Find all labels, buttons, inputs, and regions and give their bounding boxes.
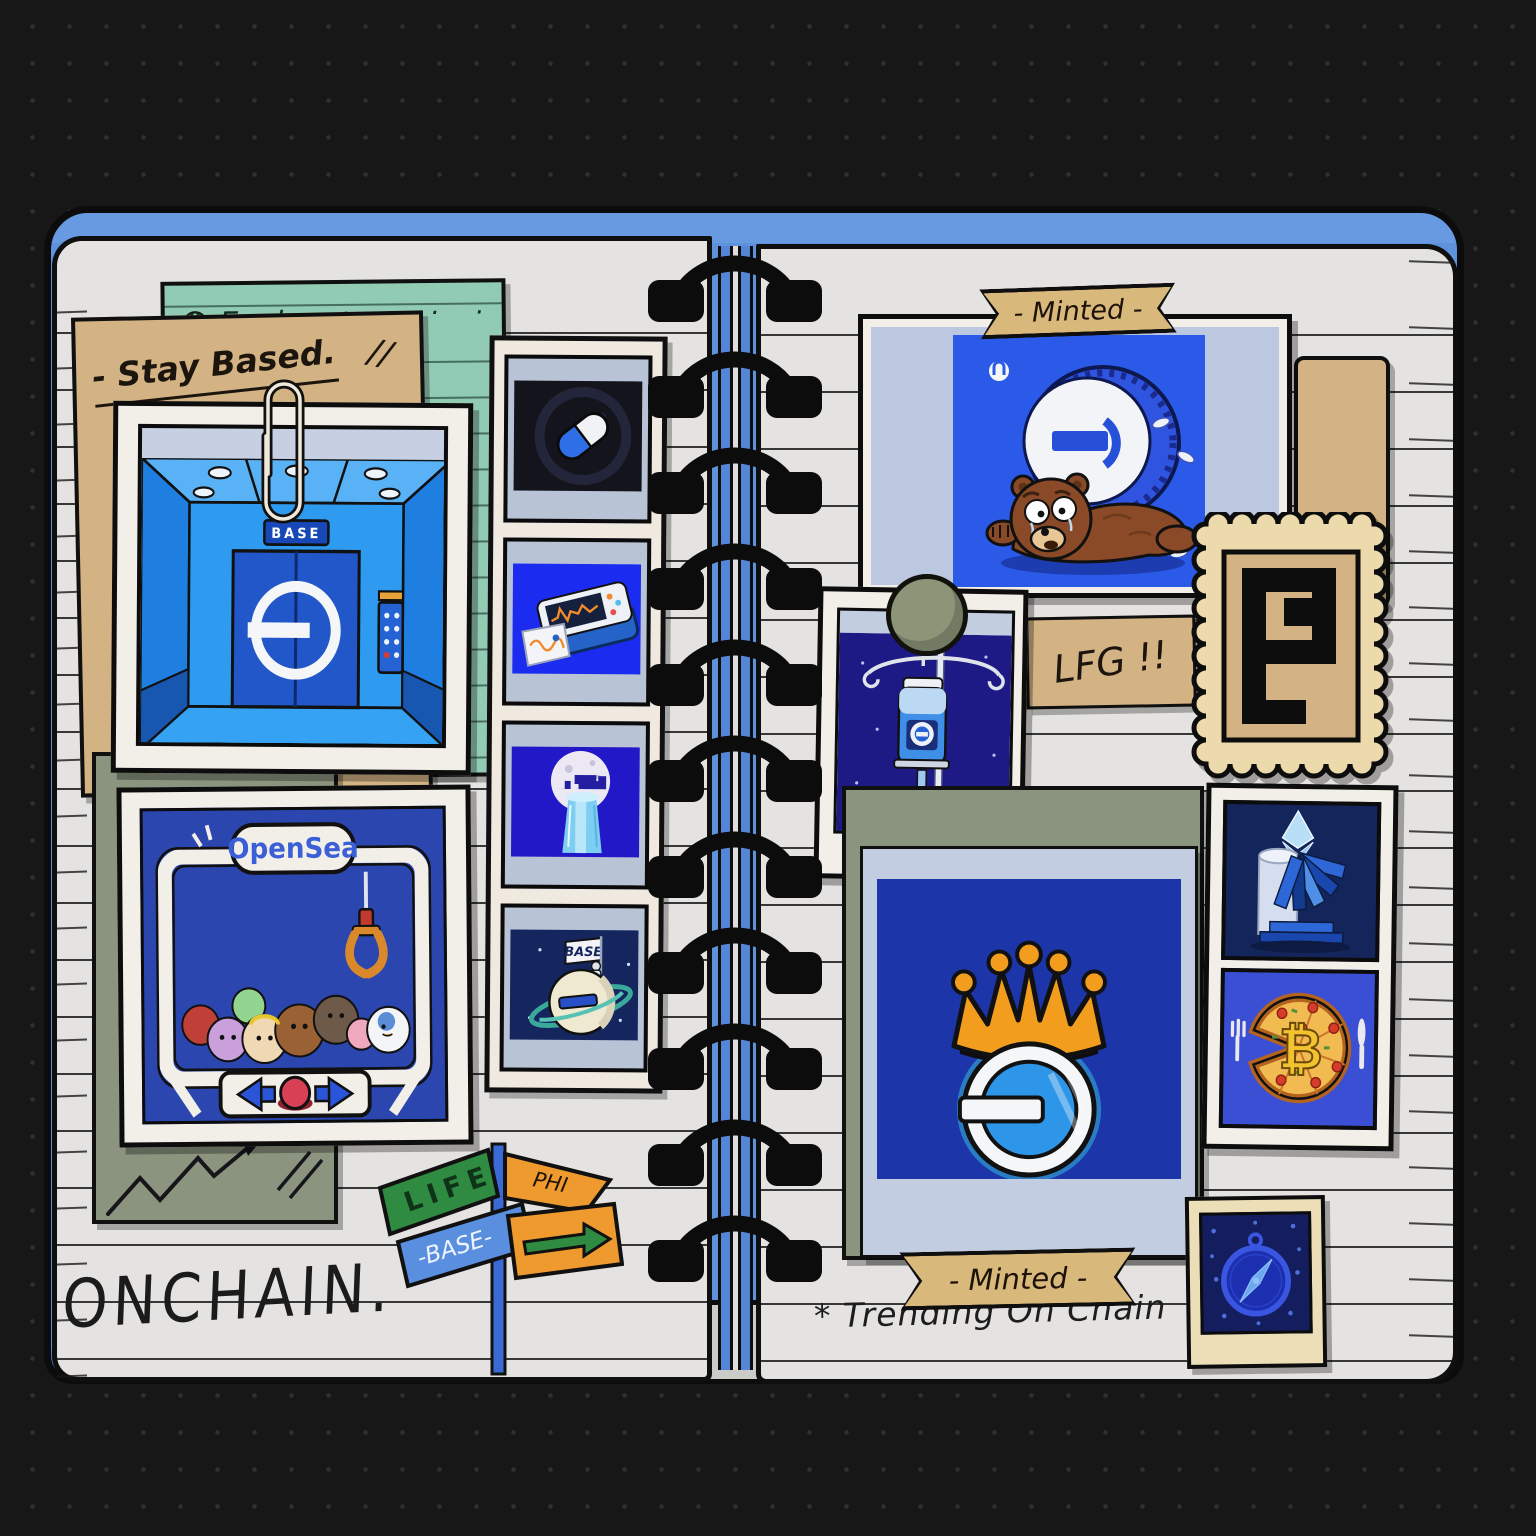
scene: Explore . . . . . - Stay Based. // — [0, 0, 1536, 1536]
crown-icon — [877, 879, 1181, 1179]
paperclip-icon — [246, 352, 322, 552]
ethereum-diamond-icon — [1225, 804, 1377, 958]
stay-based-marks: // — [365, 331, 395, 375]
right-double-frame: ₿ — [1201, 783, 1398, 1152]
minted-top-label: - Minted - — [979, 283, 1177, 340]
crown-logo-photo — [860, 846, 1198, 1258]
bitcoin-pizza-icon: ₿ — [1223, 972, 1375, 1126]
crown-photo-image — [877, 879, 1181, 1179]
claw-machine-icon: OpenSea — [143, 809, 446, 1122]
compass-photo-image — [1199, 1211, 1313, 1335]
sad-bear-coin-art — [953, 335, 1205, 587]
lfg-note: LFG !! — [1025, 615, 1197, 710]
opensea-claw-photo: OpenSea — [116, 784, 473, 1147]
compass-icon — [1202, 1214, 1310, 1331]
minted-banner-bottom: - Minted - — [899, 1248, 1136, 1311]
minted-bottom-label: - Minted - — [899, 1248, 1136, 1311]
opensea-photo-image: OpenSea — [140, 806, 449, 1125]
opensea-title-label: OpenSea — [227, 832, 359, 865]
bitcoin-symbol: ₿ — [1278, 1017, 1323, 1083]
compass-photo — [1185, 1195, 1327, 1369]
bear-photo-image — [953, 335, 1205, 587]
pixel-p-stamp-icon — [1184, 512, 1398, 780]
planet-flag-label: BASE — [564, 945, 602, 960]
bitcoin-pizza-image: ₿ — [1219, 968, 1379, 1130]
minted-banner-top: - Minted - — [979, 283, 1177, 340]
lfg-label: LFG !! — [1051, 632, 1171, 692]
signpost: LIFE PHI -BASE- — [372, 1140, 624, 1378]
eth-stairs-image — [1221, 800, 1381, 962]
round-magnet-icon — [886, 574, 968, 656]
spiral-binding — [600, 240, 870, 1370]
right-page-edge-ticks — [1409, 248, 1453, 1380]
